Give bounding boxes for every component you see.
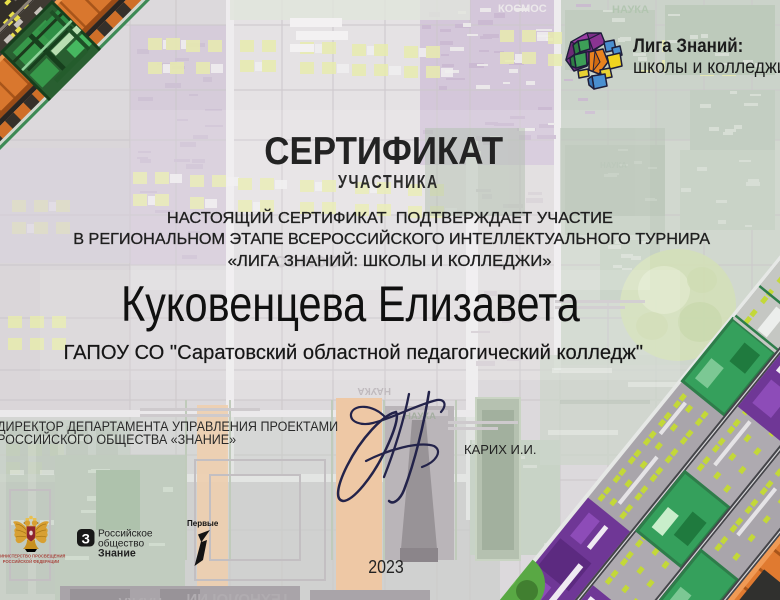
svg-text:РОССИЙСКОЙ ФЕДЕРАЦИИ: РОССИЙСКОЙ ФЕДЕРАЦИИ: [3, 559, 60, 564]
svg-text:Знание: Знание: [98, 548, 136, 560]
svg-text:З: З: [81, 532, 89, 547]
svg-text:Первые: Первые: [187, 519, 219, 528]
svg-text:МИНИСТЕРСТВО ПРОСВЕЩЕНИЯ: МИНИСТЕРСТВО ПРОСВЕЩЕНИЯ: [0, 554, 65, 559]
